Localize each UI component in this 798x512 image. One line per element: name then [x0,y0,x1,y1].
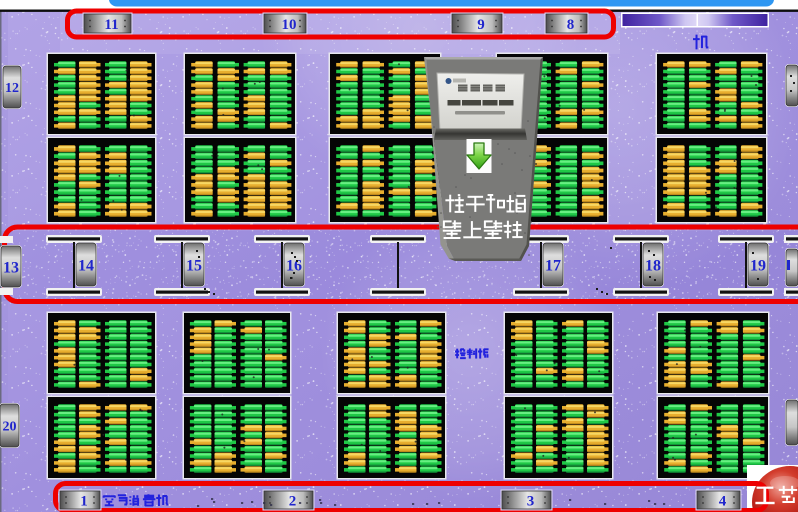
svg-text:3: 3 [527,494,535,510]
svg-text:2: 2 [289,494,297,510]
svg-text:11: 11 [104,17,118,33]
svg-text:14: 14 [78,257,94,274]
svg-text:17: 17 [545,257,561,274]
svg-text:1: 1 [80,494,88,510]
svg-text:9: 9 [477,17,485,33]
svg-text:4: 4 [719,494,727,510]
svg-text:12: 12 [5,81,19,96]
svg-text:15: 15 [186,257,202,274]
svg-text:8: 8 [567,17,575,33]
svg-text:10: 10 [282,17,297,33]
svg-text:20: 20 [3,420,17,435]
svg-text:18: 18 [645,257,661,274]
svg-text:16: 16 [286,257,302,274]
svg-text:19: 19 [750,257,766,274]
svg-text:13: 13 [3,259,19,276]
